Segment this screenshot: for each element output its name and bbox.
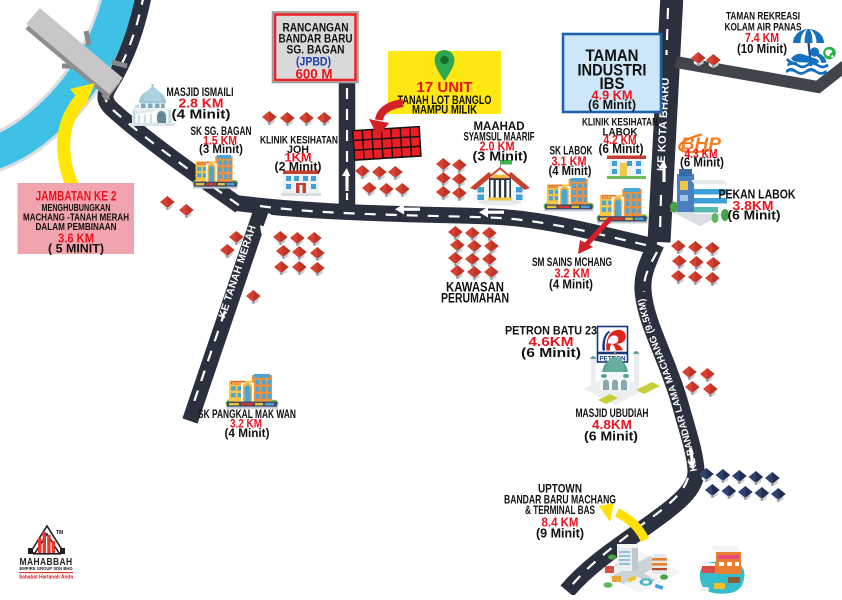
svg-text:(6 Minit): (6 Minit) xyxy=(521,346,581,360)
svg-text:(4 Minit): (4 Minit) xyxy=(549,164,592,178)
svg-text:(6 Minit): (6 Minit) xyxy=(680,155,724,169)
svg-text:( 5 MINIT): ( 5 MINIT) xyxy=(48,242,104,256)
svg-text:(3 Minit): (3 Minit) xyxy=(473,150,528,164)
svg-text:(4 Minit): (4 Minit) xyxy=(225,426,270,440)
svg-text:TM: TM xyxy=(56,530,63,536)
svg-text:PERUMAHAN: PERUMAHAN xyxy=(441,291,509,306)
svg-text:(6 Minit): (6 Minit) xyxy=(599,142,644,156)
svg-text:(3 Minit): (3 Minit) xyxy=(199,142,243,156)
svg-text:MAMPU MILIK: MAMPU MILIK xyxy=(412,103,477,117)
svg-text:(6 Minit): (6 Minit) xyxy=(584,430,638,444)
svg-text:(2 Minit): (2 Minit) xyxy=(275,160,322,174)
svg-text:600 M: 600 M xyxy=(296,66,333,82)
svg-text:(4 Minit): (4 Minit) xyxy=(172,107,231,122)
svg-text:EMPIRE GROUP SDN BHD: EMPIRE GROUP SDN BHD xyxy=(20,566,74,571)
svg-text:(9 Minit): (9 Minit) xyxy=(536,526,584,541)
svg-text:(6 Minit): (6 Minit) xyxy=(588,98,636,112)
svg-text:(10 Minit): (10 Minit) xyxy=(737,42,787,56)
svg-text:JAMBATAN KE 2: JAMBATAN KE 2 xyxy=(36,189,117,204)
svg-text:(4 Minit): (4 Minit) xyxy=(549,278,593,292)
svg-text:(6 Minit): (6 Minit) xyxy=(728,209,781,223)
svg-text:Sahabat Hartanah Anda: Sahabat Hartanah Anda xyxy=(19,575,74,581)
